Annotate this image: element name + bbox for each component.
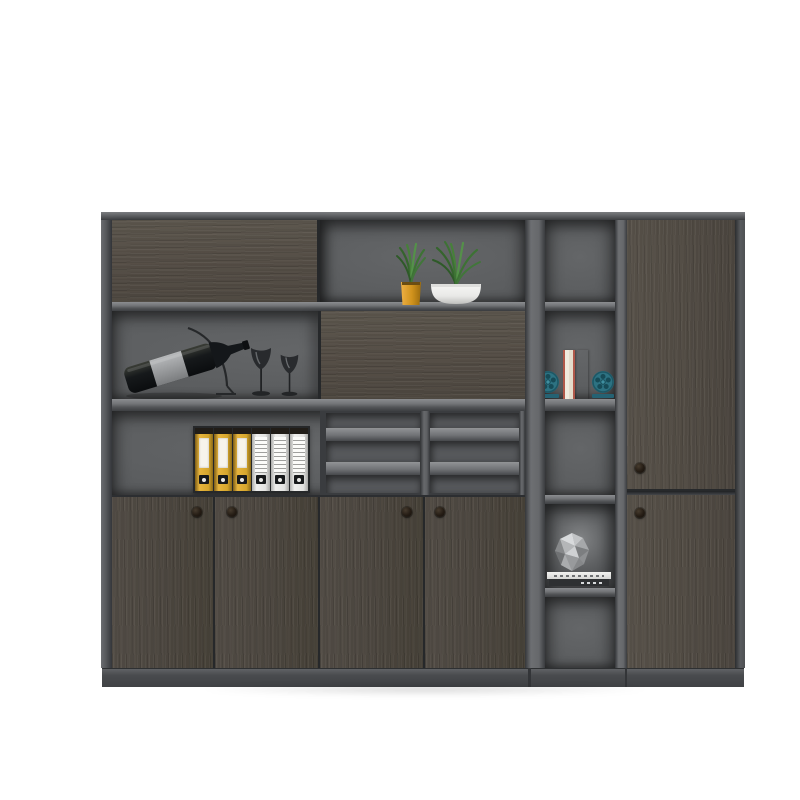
tray-shelf (430, 462, 519, 475)
tray-shelf (326, 462, 420, 475)
cabinet-right-side (735, 220, 745, 668)
binder-yellow (195, 428, 213, 491)
column-pillar-right (615, 220, 627, 668)
reel-bookend-right (591, 369, 615, 399)
shelf-divider (112, 399, 525, 411)
product-photo (0, 0, 800, 800)
plant-white-pot (427, 240, 485, 306)
wine-glass-right (281, 355, 299, 396)
wine-bottle (116, 322, 266, 402)
cubby-shelf (545, 399, 615, 411)
door-knob (192, 507, 202, 517)
tray-slot (430, 475, 519, 493)
cabinet (101, 212, 745, 687)
binder-white (290, 428, 308, 491)
faceted-stone-ornament (553, 532, 591, 572)
tray-slot (326, 413, 420, 428)
door-knob (635, 463, 645, 473)
stacked-book-dark (549, 579, 609, 586)
letter-tray-grid (320, 411, 525, 495)
wine-glass-left (251, 348, 271, 396)
binder-yellow (214, 428, 232, 491)
cubby-4-ornament (545, 504, 615, 588)
lower-door-1 (112, 497, 215, 668)
book-spine (563, 350, 575, 399)
cubby-3 (545, 411, 615, 495)
tray-slot (430, 413, 519, 428)
door-knob (435, 507, 445, 517)
upper-left-door (112, 220, 320, 302)
cubby-shelf (545, 495, 615, 504)
cubby-shelf (545, 302, 615, 311)
door-knob (635, 508, 645, 518)
tray-shelf (326, 428, 420, 441)
tray-slot (326, 475, 420, 493)
binder-yellow (233, 428, 251, 491)
door-knob (402, 507, 412, 517)
right-lower-door (627, 495, 735, 668)
binder-white (271, 428, 289, 491)
lower-door-row (112, 495, 525, 668)
lower-door-2 (215, 497, 320, 668)
column-pillar-left (525, 220, 545, 668)
cubby-shelf (545, 588, 615, 597)
book-spine (576, 350, 588, 399)
binder-holder (193, 426, 310, 493)
tray-slot (326, 441, 420, 462)
lower-door-4 (425, 497, 525, 668)
sliding-panel-door (318, 311, 525, 399)
cubby-1 (545, 220, 615, 302)
floor-shadow (108, 682, 742, 700)
wine-glasses (248, 346, 304, 399)
tray-shelf (430, 428, 519, 441)
lower-door-3 (320, 497, 425, 668)
cabinet-top-panel (101, 212, 745, 220)
cabinet-left-side (101, 220, 112, 668)
tray-slot (430, 441, 519, 462)
door-knob (227, 507, 237, 517)
tray-divider (420, 411, 430, 495)
cubby-2-bookends (545, 311, 615, 399)
plant-yellow-pot (394, 242, 428, 306)
cubby-5 (545, 597, 615, 668)
right-upper-door (627, 220, 735, 491)
binder-white (252, 428, 270, 491)
reel-bookend-left (545, 369, 560, 399)
stacked-book-light (547, 572, 611, 579)
